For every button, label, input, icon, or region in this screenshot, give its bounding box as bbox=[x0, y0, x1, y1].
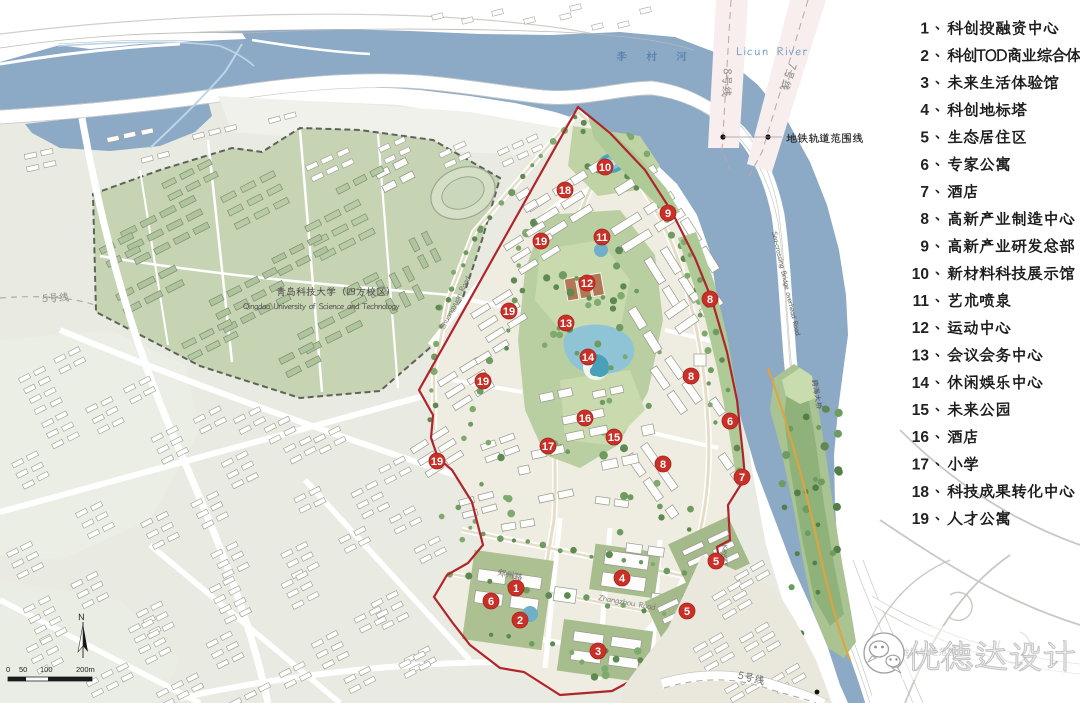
svg-text:0: 0 bbox=[6, 665, 10, 674]
svg-text:10: 10 bbox=[912, 266, 929, 283]
svg-text:8: 8 bbox=[920, 211, 929, 228]
svg-text:13: 13 bbox=[560, 318, 572, 330]
svg-text:6: 6 bbox=[488, 596, 494, 608]
svg-text:14: 14 bbox=[582, 352, 595, 364]
svg-text:11: 11 bbox=[913, 293, 930, 310]
svg-text:8: 8 bbox=[660, 459, 666, 471]
svg-text:200m: 200m bbox=[76, 665, 95, 674]
svg-text:19: 19 bbox=[503, 306, 515, 318]
svg-text:6: 6 bbox=[920, 157, 929, 174]
svg-text:5: 5 bbox=[920, 130, 929, 147]
svg-text:2: 2 bbox=[517, 615, 523, 627]
svg-text:1: 1 bbox=[513, 583, 519, 595]
svg-text:18: 18 bbox=[559, 185, 571, 197]
svg-text:1: 1 bbox=[920, 21, 929, 38]
svg-text:17: 17 bbox=[912, 457, 929, 474]
svg-text:19: 19 bbox=[912, 511, 930, 528]
svg-text:16: 16 bbox=[912, 429, 930, 446]
svg-text:11: 11 bbox=[596, 232, 608, 244]
svg-text:12: 12 bbox=[581, 278, 593, 290]
svg-text:18: 18 bbox=[912, 484, 930, 501]
svg-text:7: 7 bbox=[920, 184, 929, 201]
svg-text:3: 3 bbox=[595, 646, 601, 658]
svg-text:19: 19 bbox=[535, 236, 547, 248]
svg-text:15: 15 bbox=[912, 402, 930, 419]
svg-text:16: 16 bbox=[579, 413, 591, 425]
svg-text:100: 100 bbox=[40, 665, 53, 674]
svg-text:17: 17 bbox=[542, 441, 554, 453]
svg-text:5: 5 bbox=[684, 606, 690, 618]
svg-text:3: 3 bbox=[920, 75, 929, 92]
svg-text:19: 19 bbox=[431, 456, 443, 468]
svg-text:15: 15 bbox=[608, 432, 620, 444]
svg-text:4: 4 bbox=[619, 573, 626, 585]
svg-text:2: 2 bbox=[920, 48, 929, 65]
svg-text:14: 14 bbox=[912, 375, 930, 392]
svg-text:9: 9 bbox=[920, 239, 929, 256]
svg-text:4: 4 bbox=[920, 102, 929, 119]
svg-text:12: 12 bbox=[912, 320, 929, 337]
svg-text:8: 8 bbox=[688, 371, 694, 383]
svg-text:9: 9 bbox=[665, 208, 671, 220]
svg-text:6: 6 bbox=[727, 416, 733, 428]
svg-text:5: 5 bbox=[713, 556, 719, 568]
svg-text:19: 19 bbox=[477, 376, 489, 388]
svg-text:10: 10 bbox=[599, 162, 611, 174]
svg-text:13: 13 bbox=[912, 348, 930, 365]
svg-text:50: 50 bbox=[19, 665, 27, 674]
svg-text:7: 7 bbox=[739, 472, 745, 484]
svg-text:8: 8 bbox=[707, 294, 713, 306]
